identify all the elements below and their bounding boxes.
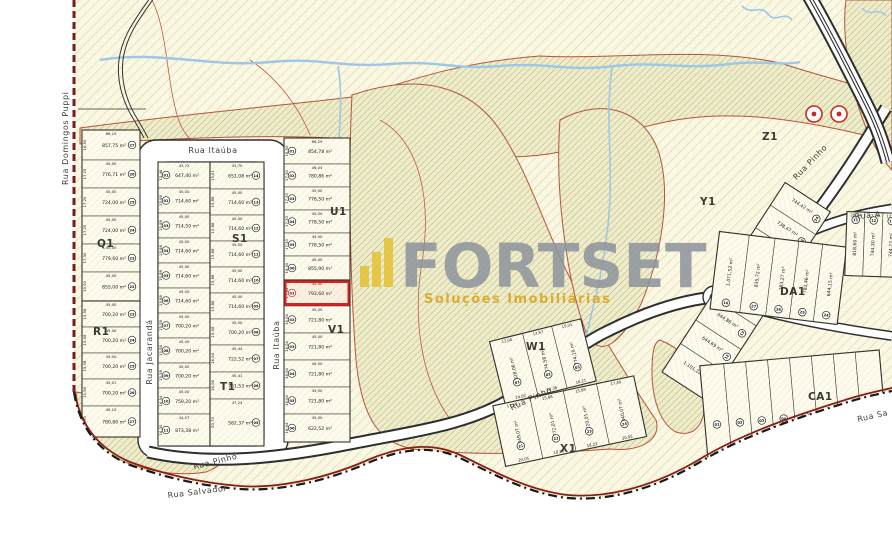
lot-area: 780,80 m²: [102, 420, 126, 426]
lot: 43,70651,08 m²15,6114: [210, 162, 264, 189]
lot-back-dim: 14,57: [781, 444, 793, 450]
street-label-domingos-puppi: Rua Domingos Puppi: [61, 92, 70, 185]
lot-back-dim: 14,42: [737, 448, 749, 454]
lot-number: 03: [289, 345, 295, 349]
lot-number: 07: [847, 411, 853, 415]
lot-area: 780,86 m²: [308, 174, 332, 180]
lot-area: 714,60 m²: [228, 278, 252, 284]
lot-area: 622,52 m²: [308, 426, 332, 432]
block-R1: 45,00700,20 m²15,582345,00700,20 m²15,58…: [82, 301, 140, 437]
lot-number-circle: [823, 411, 831, 419]
lot-number: 03: [759, 419, 765, 423]
lot: 45,00700,20 m²15,5809: [158, 363, 210, 388]
lot-number: 05: [163, 274, 169, 278]
lot-front-dim: 45,01: [106, 380, 117, 385]
quadra-label-U1: U1: [330, 206, 347, 218]
lot-number: 04: [163, 249, 169, 253]
lot-number: 13: [253, 200, 259, 204]
lot-area: 700,20 m²: [102, 338, 126, 344]
watermark: FORTSET Soluções Imobiliárias: [360, 231, 707, 307]
lot: 66,15857,75 m²16,5027: [82, 130, 140, 160]
lot-front-dim: 45,00: [312, 234, 323, 239]
street-label-salvador-right: Rua Sa: [856, 408, 889, 424]
lot-front-dim: 45,00: [179, 264, 190, 269]
lot: 45,00700,20 m²15,5808: [158, 338, 210, 363]
lot-front-dim: 45,00: [106, 217, 117, 222]
quadra-label-Y1: Y1: [699, 196, 716, 208]
lot: 45,00714,60 m²15,8804: [158, 238, 210, 263]
lot-area: 647,40 m²: [175, 173, 199, 179]
lot-side-dim: 16,06: [210, 379, 215, 390]
lot-area: 744,30 m²: [870, 232, 877, 256]
lot-number: 23: [129, 312, 135, 316]
lot-front-dim: 45,00: [106, 189, 117, 194]
lot-side-dim: 17,30: [82, 252, 87, 263]
lot-area: 700,20 m²: [175, 324, 199, 330]
lot: 45,00724,00 m²17,2025: [82, 188, 140, 216]
lot-area: 722,52 m²: [228, 357, 252, 363]
lot: 45,00714,60 m²15,8813: [210, 189, 264, 215]
lot-number: 02: [163, 199, 169, 203]
lot-area: 714,60 m²: [228, 252, 252, 258]
lot-area: 855,00 m²: [102, 285, 126, 291]
lot-front-dim: 45,00: [312, 211, 323, 216]
plat-map-page: 66,15857,75 m²16,502745,00776,71 m²17,25…: [0, 0, 892, 533]
lot-area: 714,60 m²: [228, 200, 252, 206]
lot-number: 08: [253, 330, 259, 334]
lot: 66,29854,78 m²16,5001: [284, 138, 350, 164]
lot-side-dim: 17,25: [82, 168, 87, 179]
lot-area: 651,08 m²: [228, 174, 252, 180]
lot-side-dim: 15,61: [210, 169, 215, 180]
lot-area: 855,90 m²: [308, 266, 332, 272]
lot-front-dim: 47,24: [232, 400, 243, 405]
lot-front-dim: 45,44: [232, 346, 243, 351]
lot-number: 06: [253, 384, 259, 388]
lot-front-dim: 45,00: [312, 388, 323, 393]
block-Q1: 66,15857,75 m²16,502745,00776,71 m²17,25…: [82, 130, 140, 301]
lot-area: 700,20 m²: [228, 330, 252, 336]
lot-number: 25: [129, 364, 135, 368]
block-V1: 45,00793,60 m²17,640145,00721,80 m²16,04…: [284, 280, 350, 442]
lot-number: 24: [129, 228, 135, 232]
lot-side-dim: 15,88: [210, 248, 215, 259]
lot-area: 778,50 m²: [308, 220, 332, 226]
quadra-label-W1: W1: [526, 341, 546, 353]
lot-number: 24: [823, 313, 829, 318]
lot-area: 714,60 m²: [175, 249, 199, 255]
lot-number: 02: [289, 174, 295, 178]
lot-front-dim: 45,00: [312, 188, 323, 193]
lot: 45,00714,60 m²15,8802: [158, 188, 210, 213]
lot-number: 26: [776, 307, 782, 312]
lot-area: 857,75 m²: [102, 143, 126, 149]
lot-area: 721,80 m²: [308, 345, 332, 351]
lot-area: 724,00 m²: [102, 228, 126, 234]
lot-side-dim: 16,50: [82, 139, 87, 150]
lot-front-dim: 43,70: [232, 163, 243, 168]
lot-number: 25: [129, 200, 135, 204]
lot-number: 11: [253, 252, 259, 256]
lot-number: 08: [163, 349, 169, 353]
lot-area: 700,20 m²: [175, 349, 199, 355]
lot-front-dim: 45,00: [179, 214, 190, 219]
lot-number: 11: [163, 428, 169, 432]
lot-area: 724,00 m²: [102, 200, 126, 206]
lot-front-dim: 66,15: [106, 131, 117, 136]
lot-number: 04: [289, 220, 295, 224]
lot: 45,00759,20 m²16,5410: [158, 388, 210, 414]
lot-side-dim: 15,58: [82, 360, 87, 371]
lot-front-dim: 66,29: [312, 139, 323, 144]
lot-area: 700,20 m²: [175, 374, 199, 380]
lot: 47,24582,37 m²50,7005: [210, 399, 264, 446]
lot-area: 779,60 m²: [102, 256, 126, 262]
lot-number: 03: [163, 224, 169, 228]
lot-front-dim: 45,10: [106, 407, 117, 412]
lot-number: 06: [289, 266, 295, 270]
lot: 46,04780,86 m²17,3002: [284, 164, 350, 187]
lot-front-dim: 45,00: [232, 320, 243, 325]
lot: 45,00700,20 m²15,5808: [210, 319, 264, 345]
lot-number: 06: [163, 299, 169, 303]
lot-number: 01: [289, 149, 295, 153]
lot-side-dim: 15,58: [82, 386, 87, 397]
lot-front-dim: 45,00: [312, 257, 323, 262]
lot-area: 776,71 m²: [102, 172, 126, 178]
lot: 45,41761,53 m²16,0606: [210, 372, 264, 399]
lot-number: 26: [129, 391, 135, 395]
lot-number: 05: [289, 243, 295, 247]
lot-area: 873,38 m²: [175, 428, 199, 434]
lot: 45,00714,50 m²15,8803: [158, 213, 210, 238]
lot-side-dim: 17,20: [82, 196, 87, 207]
lot: 45,01700,20 m²15,5826: [82, 379, 140, 406]
lot: 45,00714,60 m²15,8809: [210, 293, 264, 319]
lot: 17,26744,30 m²12: [863, 212, 883, 277]
quadra-label-CA1: CA1: [808, 391, 833, 403]
lot-number: 06: [825, 413, 831, 417]
lot-number: 01: [163, 173, 169, 177]
lot-front-dim: 45,00: [106, 354, 117, 359]
lot-side-dim: 50,70: [210, 416, 215, 427]
street-label-itauba-top: Rua Itaúba: [188, 146, 237, 155]
lot: 45,00700,20 m²15,5823: [82, 301, 140, 327]
street-label-jacaranda: Rua Jacarandá: [145, 319, 154, 384]
lot-side-dim: 15,88: [210, 196, 215, 207]
lot-number: 16: [723, 301, 729, 306]
lot-area: 759,20 m²: [175, 399, 199, 405]
lot-side-dim: 15,58: [210, 326, 215, 337]
lot-number: 26: [129, 172, 135, 176]
lot-number: 27: [129, 420, 135, 424]
lot-area: 778,50 m²: [308, 197, 332, 203]
lot-side-dim: 17,20: [82, 224, 87, 235]
quadra-label-Q1: Q1: [97, 238, 114, 250]
lot-front-dim: 45,00: [232, 190, 243, 195]
watermark-tagline: Soluções Imobiliárias: [424, 292, 611, 307]
lot-number: 09: [163, 374, 169, 378]
block-S1_left: 43,72647,40 m²15,460145,00714,60 m²15,88…: [158, 162, 210, 446]
lot-front-dim: 45,00: [232, 268, 243, 273]
lot-front-dim: 45,00: [179, 314, 190, 319]
lot-area: 818,60 m²: [852, 232, 859, 256]
lot: 45,00700,20 m²15,5807: [158, 313, 210, 338]
lot-back-dim: 14,57: [802, 442, 814, 448]
lot-area: 721,80 m²: [308, 318, 332, 324]
lot: 45,00855,90 m²18,0006: [284, 256, 350, 280]
lot-number: 25: [800, 310, 806, 315]
lot-number: 02: [737, 421, 743, 425]
lot-number: 24: [129, 338, 135, 342]
lot-number: 04: [289, 372, 295, 376]
lot-side-dim: 15,58: [82, 308, 87, 319]
lot-number: 23: [129, 256, 135, 260]
quadra-label-DA1: DA1: [780, 286, 806, 298]
quadra-label-R1: R1: [93, 326, 109, 338]
lot: 45,00721,80 m²16,0405: [284, 387, 350, 414]
lot-area: 714,60 m²: [175, 299, 199, 305]
lot-number: 07: [253, 357, 259, 361]
lot: 44,07873,38 m²16,3011: [158, 414, 210, 446]
lot: 45,00721,80 m²16,0404: [284, 360, 350, 387]
lot-front-dim: 45,00: [179, 339, 190, 344]
lot-area: 700,20 m²: [102, 391, 126, 397]
lot-number: 14: [253, 174, 259, 178]
lot-number-circle: [845, 409, 853, 417]
lot: 45,00622,52 m²16,0406: [284, 414, 350, 442]
lot-front-dim: 45,00: [312, 307, 323, 312]
lot-front-dim: 45,00: [179, 239, 190, 244]
highlighted-lot[interactable]: 45,00793,60 m²17,6401: [284, 280, 350, 306]
lot-back-dim: 14,57: [824, 440, 836, 446]
lot-number: 03: [289, 197, 295, 201]
lot-number: 06: [289, 426, 295, 430]
lot-number: 10: [253, 278, 259, 282]
lot: 45,00700,20 m²15,5825: [82, 353, 140, 379]
lot-area: 721,80 m²: [308, 372, 332, 378]
street-label-salvador: Rua Salvador: [167, 484, 228, 500]
lot-number: 09: [253, 304, 259, 308]
lot-number: 05: [289, 399, 295, 403]
lot-side-dim: 16,04: [210, 352, 215, 363]
lot-area: 700,20 m²: [102, 312, 126, 318]
lot-number: 05: [253, 421, 259, 425]
lot-front-dim: 46,04: [312, 165, 323, 170]
lot-area: 714,60 m²: [175, 199, 199, 205]
block-CA1: 15,490114,420214,570314,570414,570514,57…: [700, 350, 887, 457]
lot: 45,00700,20 m²15,5824: [82, 327, 140, 353]
highlight-outline: [285, 282, 349, 305]
lot-front-dim: 45,00: [232, 216, 243, 221]
lot-back-dim: 14,69: [846, 438, 858, 444]
lot: 45,00714,60 m²15,8806: [158, 288, 210, 313]
lot-side-dim: 15,88: [210, 274, 215, 285]
lot: 45,00714,60 m²15,8810: [210, 267, 264, 293]
lot-front-dim: 43,72: [179, 163, 190, 168]
lot-front-dim: 45,00: [312, 361, 323, 366]
lot-area: 714,60 m²: [228, 226, 252, 232]
lot-front-dim: 45,00: [232, 294, 243, 299]
street-label-itauba-side: Rua Itaúba: [272, 320, 281, 369]
lot-side-dim: 15,88: [210, 300, 215, 311]
lot-front-dim: 45,00: [179, 289, 190, 294]
lot-front-dim: 45,00: [179, 364, 190, 369]
lot-front-dim: 45,00: [312, 334, 323, 339]
quadra-label-S1: S1: [232, 233, 248, 245]
block-S1_right: 43,70651,08 m²15,611445,00714,60 m²15,88…: [210, 162, 264, 446]
lot-number: 02: [289, 318, 295, 322]
lot: 45,00778,50 m²17,3005: [284, 233, 350, 256]
lot: 45,44722,52 m²16,0407: [210, 345, 264, 372]
lot-front-dim: 45,00: [312, 415, 323, 420]
lot: 45,00721,80 m²16,0403: [284, 333, 350, 360]
lot-front-dim: 45,00: [106, 302, 117, 307]
lot-area: 714,60 m²: [228, 304, 252, 310]
lot: 17,26744,22 m²13: [881, 213, 892, 278]
lot: 45,00714,60 m²15,8805: [158, 263, 210, 288]
lot: 45,00855,00 m²19,0022: [82, 272, 140, 301]
lot-area: 714,60 m²: [175, 274, 199, 280]
survey-marker-dot: [837, 112, 842, 117]
lot-area: 714,50 m²: [175, 224, 199, 230]
lot-number: 10: [163, 399, 169, 403]
lot-side-dim: 15,58: [82, 334, 87, 345]
lot-front-dim: 45,41: [232, 373, 243, 378]
lot-area: 700,20 m²: [102, 364, 126, 370]
lot-area: 854,78 m²: [308, 149, 332, 155]
lot-number: 27: [751, 304, 757, 309]
quadra-label-X1: X1: [560, 443, 576, 455]
lot: 45,00776,71 m²17,2526: [82, 160, 140, 188]
lot-number: 27: [129, 143, 135, 147]
lot-back-dim: 15,43: [869, 436, 881, 442]
lot-front-dim: 45,00: [106, 161, 117, 166]
lot-number: 22: [129, 285, 135, 289]
lot-number: 01: [714, 423, 720, 427]
lot-side-dim: 19,00: [82, 280, 87, 291]
lot: 43,72647,40 m²15,4601: [158, 162, 210, 188]
lot-front-dim: 45,00: [179, 389, 190, 394]
lot-back-dim: 14,57: [759, 446, 771, 452]
survey-marker-dot: [812, 112, 817, 117]
quadra-label-T1: T1: [220, 381, 235, 393]
lot-side-dim: 15,88: [210, 222, 215, 233]
lot-front-dim: 44,07: [179, 415, 190, 420]
block-E1: 20,24818,60 m²1117,26744,30 m²1217,26744…: [845, 212, 892, 278]
lot-area: 721,80 m²: [308, 399, 332, 405]
lot-number: 12: [253, 226, 259, 230]
lot-area: 582,37 m²: [228, 421, 252, 427]
lot-number: 07: [163, 324, 169, 328]
lot-area: 778,50 m²: [308, 243, 332, 249]
quadra-label-V1: V1: [328, 324, 344, 336]
block-DA1: 1.071,52 m²16835,72 m²27783,27 m²26783,4…: [710, 231, 847, 324]
quadra-label-Z1: Z1: [762, 131, 778, 143]
lot-front-dim: 45,00: [179, 189, 190, 194]
subdivision-plat-map: 66,15857,75 m²16,502745,00776,71 m²17,25…: [0, 0, 892, 533]
lot-front-dim: 45,00: [106, 273, 117, 278]
